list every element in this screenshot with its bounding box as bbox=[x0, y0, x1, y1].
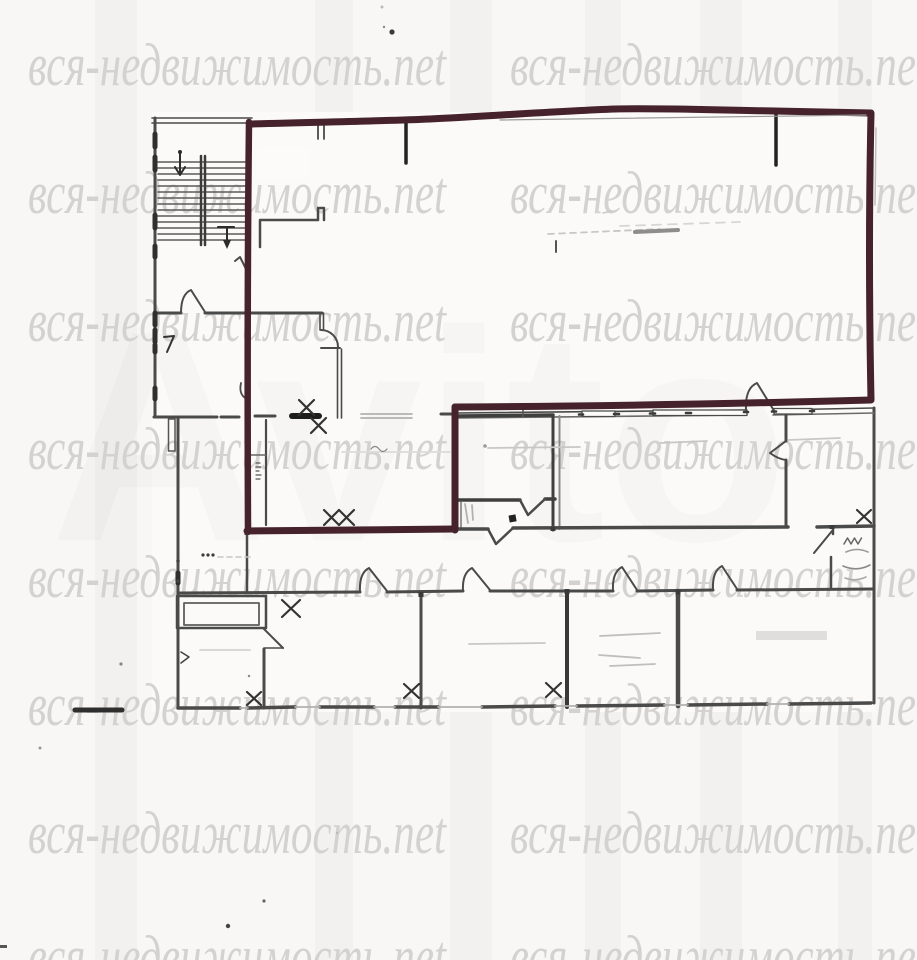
svg-text:вся-недвижимость.net: вся-недвижимость.net bbox=[28, 800, 447, 866]
svg-text:вся-недвижимость.net: вся-недвижимость.net bbox=[28, 32, 447, 98]
svg-text:вся-недвижимость.net: вся-недвижимость.net bbox=[510, 924, 917, 960]
svg-text:вся-недвижимость.net: вся-недвижимость.net bbox=[28, 672, 447, 738]
svg-text:вся-недвижимость.net: вся-недвижимость.net bbox=[510, 416, 917, 482]
svg-text:вся-недвижимость.net: вся-недвижимость.net bbox=[28, 924, 447, 960]
svg-text:вся-недвижимость.net: вся-недвижимость.net bbox=[28, 416, 447, 482]
svg-text:вся-недвижимость.net: вся-недвижимость.net bbox=[510, 160, 917, 226]
svg-text:вся-недвижимость.net: вся-недвижимость.net bbox=[28, 544, 447, 610]
svg-text:вся-недвижимость.net: вся-недвижимость.net bbox=[28, 288, 447, 354]
svg-text:вся-недвижимость.net: вся-недвижимость.net bbox=[510, 32, 917, 98]
svg-text:вся-недвижимость.net: вся-недвижимость.net bbox=[510, 800, 917, 866]
svg-text:вся-недвижимость.net: вся-недвижимость.net bbox=[510, 288, 917, 354]
